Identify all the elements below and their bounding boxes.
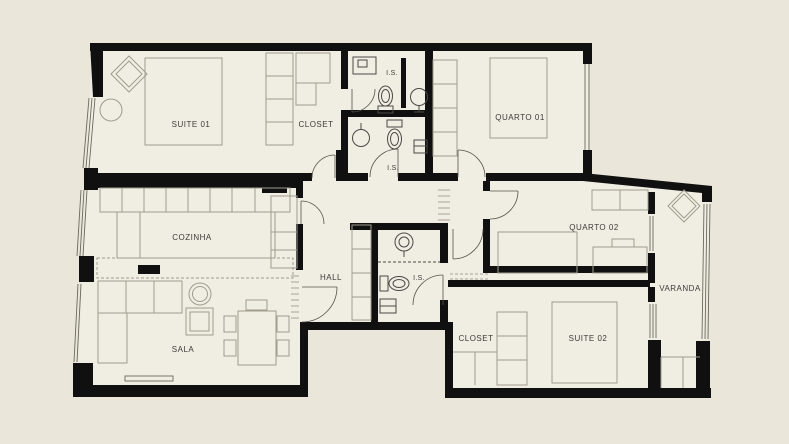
floor-layer: [77, 48, 710, 393]
room-label-is-hall: I.S.: [413, 275, 425, 282]
room-label-is-mid: I.S.: [387, 165, 399, 172]
room-label-sala: SALA: [172, 345, 195, 354]
room-label-suite-02: SUITE 02: [569, 334, 608, 343]
room-label-quarto-01: QUARTO 01: [495, 113, 545, 122]
room-label-varanda: VARANDA: [659, 284, 701, 293]
room-label-suite-01: SUITE 01: [172, 120, 211, 129]
bathroom-partition: [401, 58, 406, 108]
room-label-cozinha: COZINHA: [172, 233, 212, 242]
floor-plan-canvas: SUITE 01 CLOSET I.S. I.S. QUARTO 01 COZI…: [0, 0, 789, 444]
room-label-quarto-02: QUARTO 02: [569, 223, 619, 232]
room-label-is-top: I.S.: [386, 70, 398, 77]
room-label-closet-top: CLOSET: [298, 120, 333, 129]
room-label-hall: HALL: [320, 273, 342, 282]
floor-plan: SUITE 01 CLOSET I.S. I.S. QUARTO 01 COZI…: [0, 0, 789, 444]
room-label-closet-bottom: CLOSET: [458, 334, 493, 343]
